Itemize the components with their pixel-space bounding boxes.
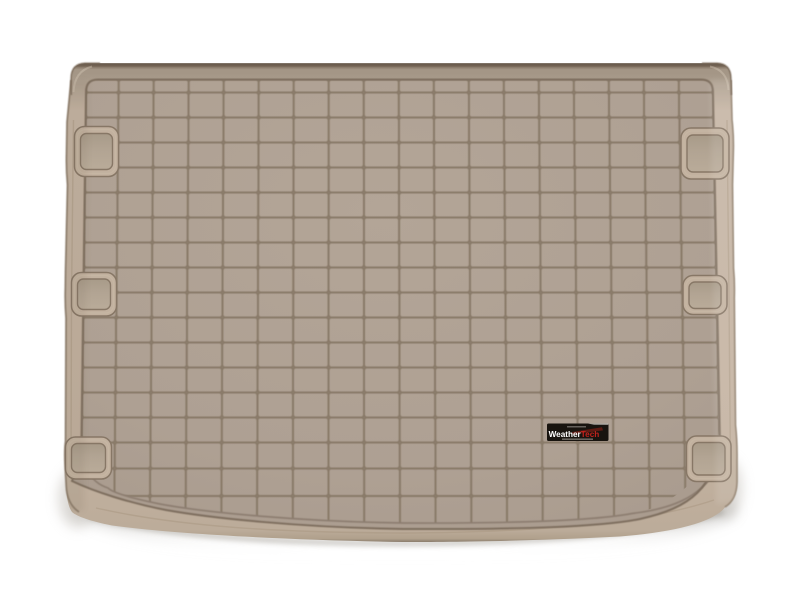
svg-text:WeatherTech: WeatherTech [549,430,600,439]
